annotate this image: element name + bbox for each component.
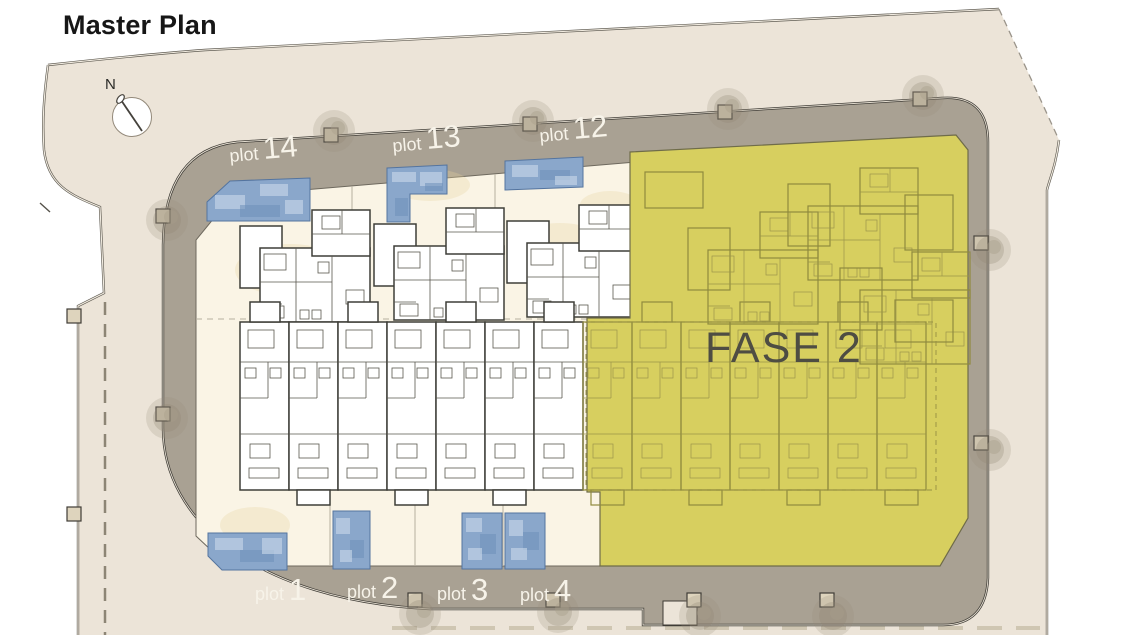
page-title: Master Plan <box>63 10 217 41</box>
rowhouse-unit <box>387 322 436 505</box>
tree-icon <box>146 199 188 241</box>
phase2-overlay: FASE 2 <box>583 135 970 566</box>
swimming-pool <box>505 513 545 569</box>
master-plan-canvas: FASE 2 plot14 plot13 plot12 plot1 <box>0 0 1130 635</box>
rowhouse-unit <box>485 322 534 505</box>
street-lamp-icon <box>67 309 81 323</box>
tree-icon <box>707 88 749 130</box>
rowhouse-unit <box>289 322 338 505</box>
phase2-label: FASE 2 <box>705 324 863 372</box>
tree-icon <box>969 229 1011 271</box>
swimming-pool <box>333 511 370 569</box>
rowhouse-unit <box>240 302 289 490</box>
tree-icon <box>146 397 188 439</box>
swimming-pool <box>505 157 583 190</box>
tree-icon <box>969 429 1011 471</box>
swimming-pool <box>208 533 287 570</box>
tree-icon <box>902 75 944 117</box>
rowhouse-unit <box>436 302 485 490</box>
tree-icon <box>313 110 355 152</box>
north-label: N <box>105 76 116 93</box>
swimming-pool <box>462 513 502 569</box>
tree-icon <box>399 593 441 635</box>
street-lamp-icon <box>67 507 81 521</box>
rowhouse-unit <box>338 302 387 490</box>
rowhouse-unit <box>534 302 583 490</box>
site-plan: FASE 2 plot14 plot13 plot12 plot1 <box>0 0 1130 635</box>
